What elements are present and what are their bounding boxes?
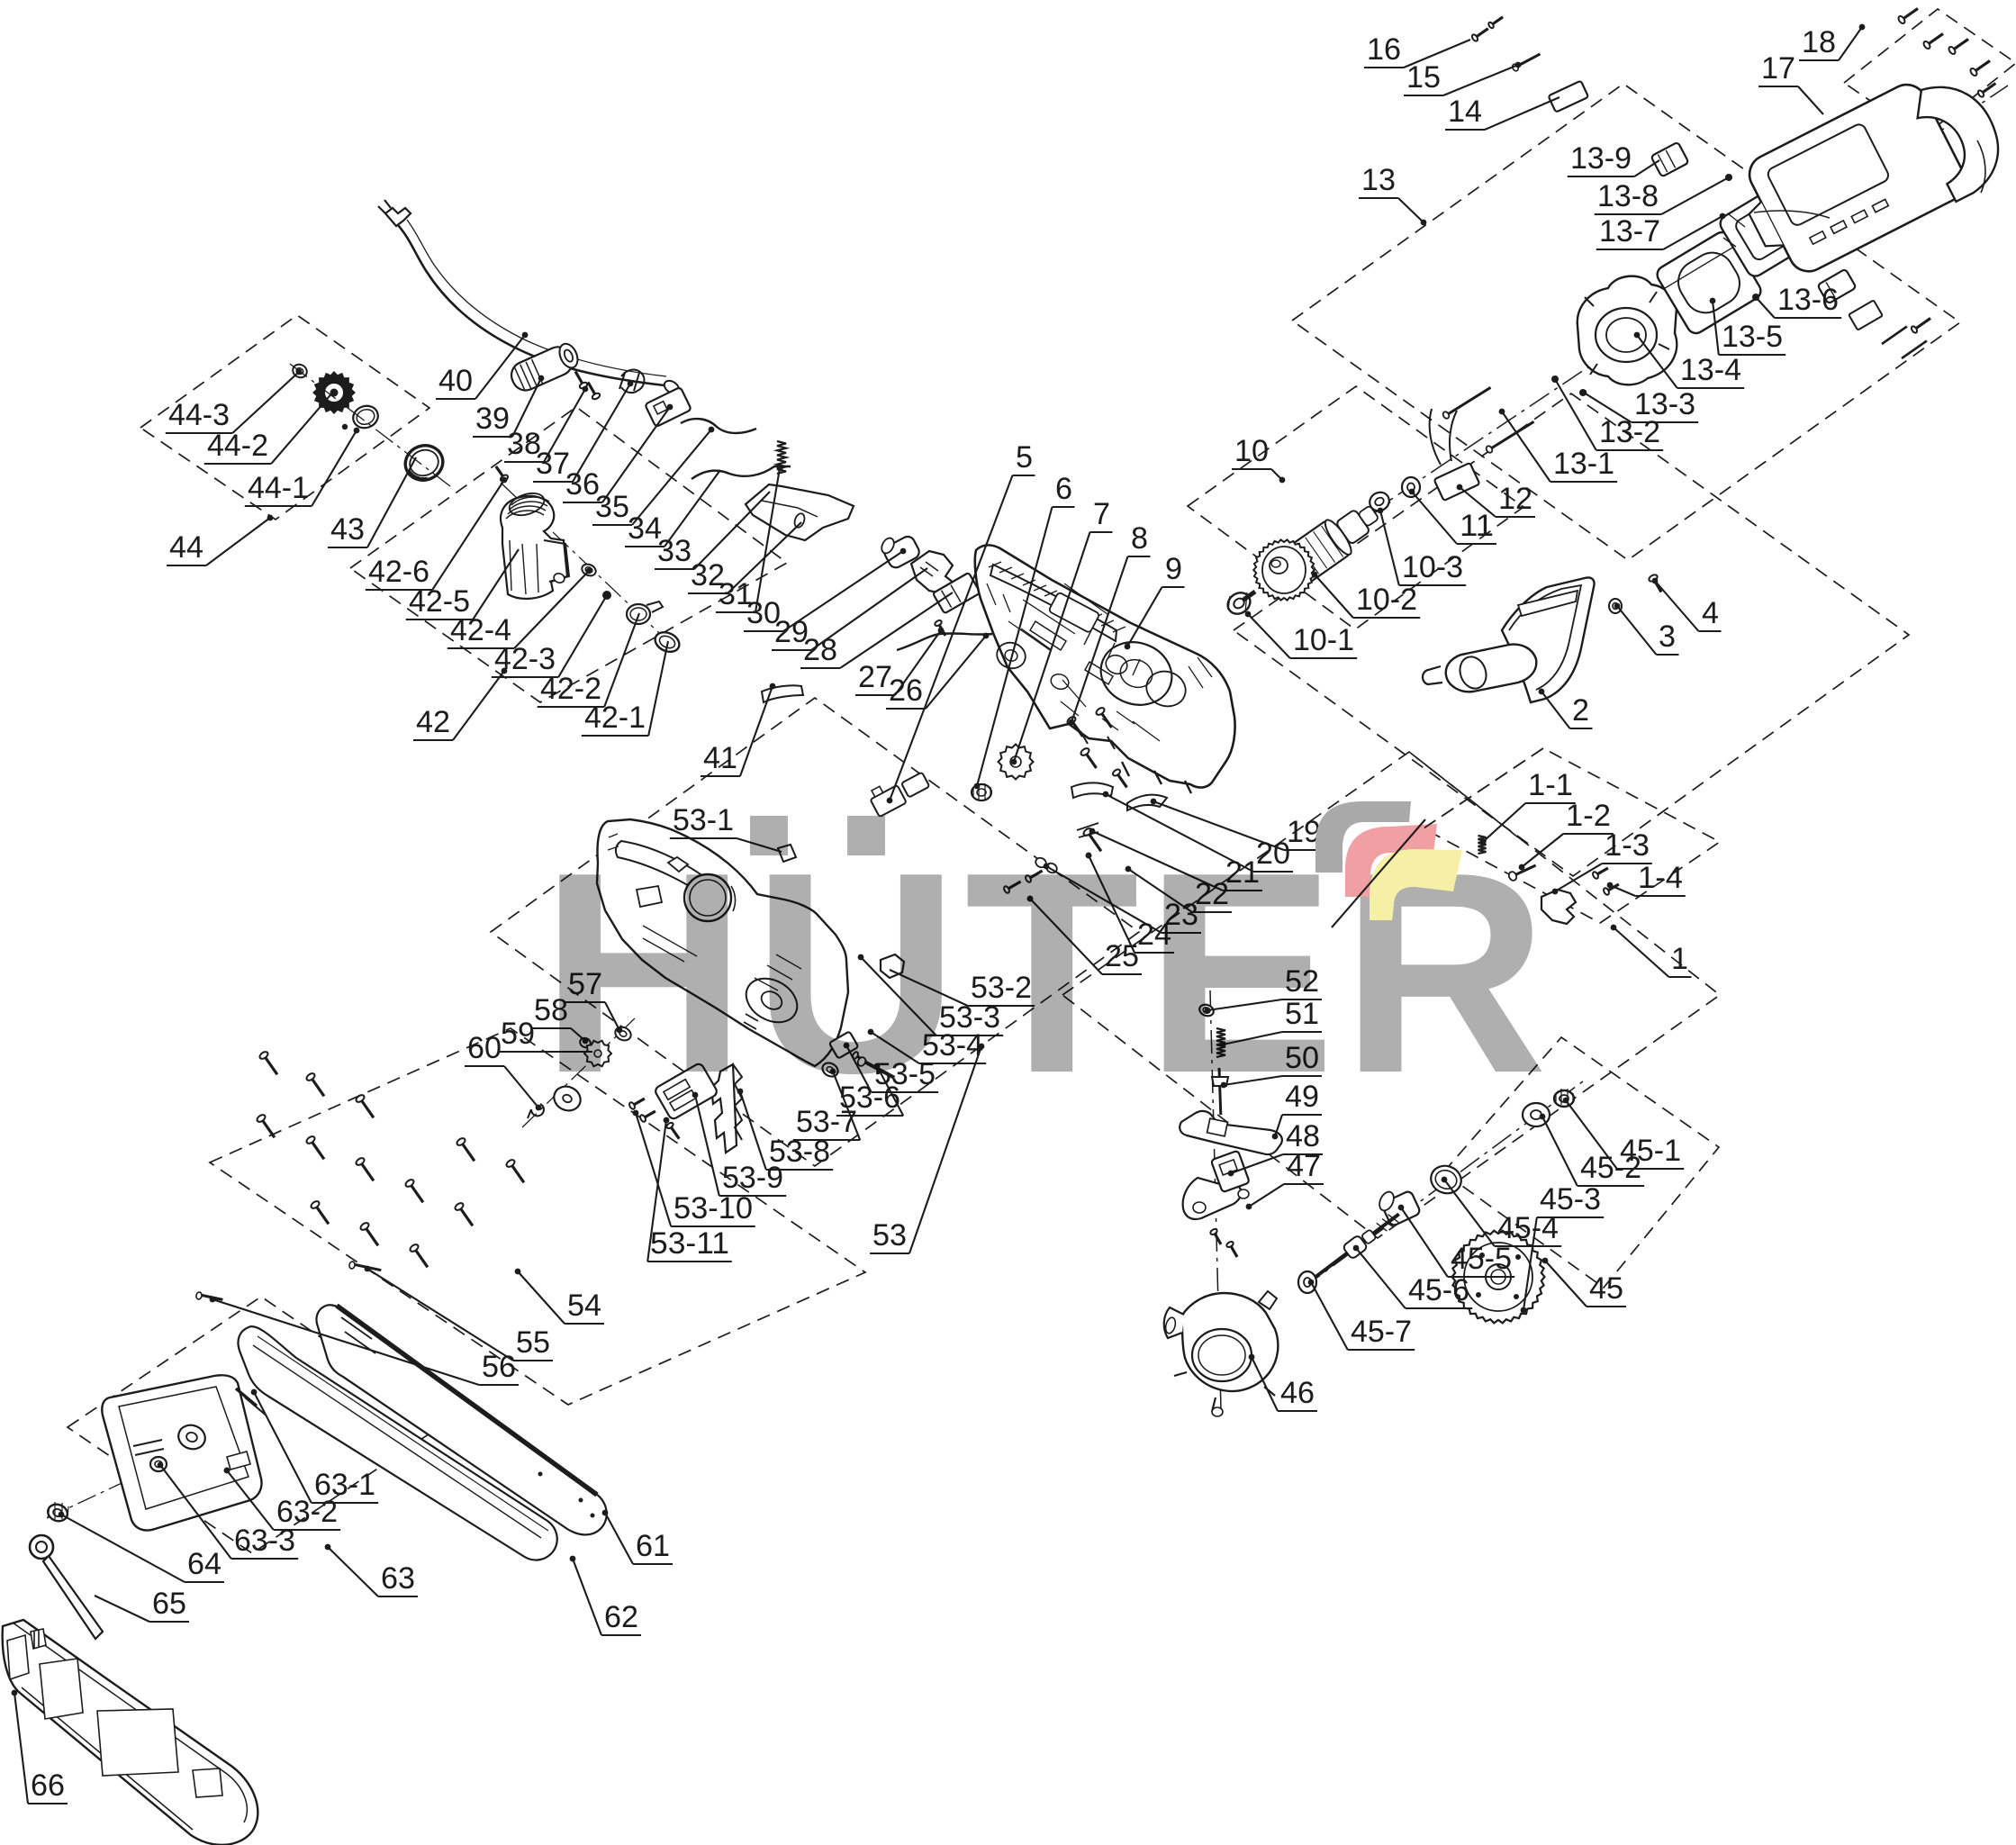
svg-text:55: 55: [516, 1325, 550, 1360]
svg-text:45: 45: [1589, 1271, 1623, 1306]
svg-text:44-3: 44-3: [168, 398, 230, 432]
svg-text:18: 18: [1802, 25, 1836, 59]
svg-text:1-4: 1-4: [1638, 861, 1683, 895]
svg-text:13-1: 13-1: [1553, 447, 1614, 481]
svg-text:13: 13: [1361, 163, 1396, 197]
svg-text:11: 11: [1460, 509, 1494, 543]
svg-text:62: 62: [604, 1600, 638, 1634]
svg-text:60: 60: [467, 1031, 502, 1065]
svg-text:63-3: 63-3: [234, 1524, 295, 1558]
svg-text:42-1: 42-1: [584, 701, 646, 735]
svg-text:47: 47: [1287, 1149, 1321, 1183]
svg-text:45-5: 45-5: [1451, 1242, 1512, 1276]
svg-text:33: 33: [657, 534, 692, 568]
svg-text:43: 43: [330, 512, 365, 547]
svg-text:5: 5: [1016, 440, 1033, 475]
svg-text:53-9: 53-9: [722, 1161, 783, 1195]
svg-text:54: 54: [567, 1289, 601, 1323]
svg-text:63: 63: [381, 1561, 415, 1596]
svg-text:13-7: 13-7: [1599, 214, 1660, 249]
svg-text:13-9: 13-9: [1570, 141, 1632, 176]
svg-text:53-10: 53-10: [674, 1191, 753, 1225]
svg-text:1-1: 1-1: [1528, 768, 1573, 802]
svg-text:15: 15: [1406, 60, 1441, 95]
svg-text:45-4: 45-4: [1497, 1211, 1559, 1245]
svg-text:1: 1: [1671, 942, 1688, 976]
svg-text:44: 44: [169, 530, 203, 565]
svg-text:8: 8: [1131, 521, 1148, 556]
svg-text:64: 64: [187, 1547, 221, 1581]
svg-text:41: 41: [703, 741, 737, 775]
svg-text:46: 46: [1280, 1376, 1315, 1410]
svg-text:13-5: 13-5: [1722, 320, 1783, 354]
svg-text:59: 59: [501, 1017, 535, 1051]
svg-text:6: 6: [1055, 472, 1072, 506]
svg-text:1-3: 1-3: [1605, 828, 1650, 863]
svg-text:53-11: 53-11: [650, 1226, 729, 1261]
svg-text:65: 65: [152, 1587, 186, 1621]
svg-text:10-1: 10-1: [1293, 623, 1354, 657]
svg-text:17: 17: [1761, 51, 1795, 86]
svg-text:13-8: 13-8: [1597, 179, 1659, 213]
svg-text:9: 9: [1165, 552, 1182, 586]
svg-text:2: 2: [1572, 693, 1589, 728]
svg-text:14: 14: [1448, 95, 1482, 129]
svg-text:45-7: 45-7: [1351, 1315, 1412, 1349]
svg-text:35: 35: [595, 490, 629, 524]
svg-text:7: 7: [1093, 497, 1110, 531]
svg-text:16: 16: [1367, 32, 1401, 67]
svg-text:28: 28: [803, 633, 837, 667]
svg-text:27: 27: [858, 660, 892, 694]
svg-text:10-2: 10-2: [1356, 583, 1417, 617]
svg-text:26: 26: [889, 674, 923, 708]
svg-text:4: 4: [1702, 596, 1719, 630]
svg-text:13-4: 13-4: [1680, 353, 1741, 387]
svg-text:40: 40: [438, 364, 473, 398]
svg-text:53: 53: [872, 1218, 907, 1253]
svg-text:66: 66: [31, 1768, 65, 1803]
svg-text:44-2: 44-2: [207, 429, 268, 463]
svg-text:45-2: 45-2: [1580, 1151, 1641, 1185]
svg-text:45-6: 45-6: [1408, 1273, 1469, 1307]
svg-text:13-6: 13-6: [1777, 283, 1839, 317]
svg-text:10: 10: [1234, 434, 1269, 468]
svg-text:13-2: 13-2: [1599, 415, 1660, 449]
svg-text:10-3: 10-3: [1402, 550, 1463, 584]
svg-text:44-1: 44-1: [248, 471, 309, 505]
svg-text:3: 3: [1659, 620, 1676, 654]
svg-text:12: 12: [1498, 482, 1532, 516]
svg-text:42: 42: [416, 705, 450, 739]
svg-text:39: 39: [475, 402, 510, 436]
svg-text:56: 56: [482, 1350, 516, 1384]
svg-text:61: 61: [636, 1529, 670, 1563]
